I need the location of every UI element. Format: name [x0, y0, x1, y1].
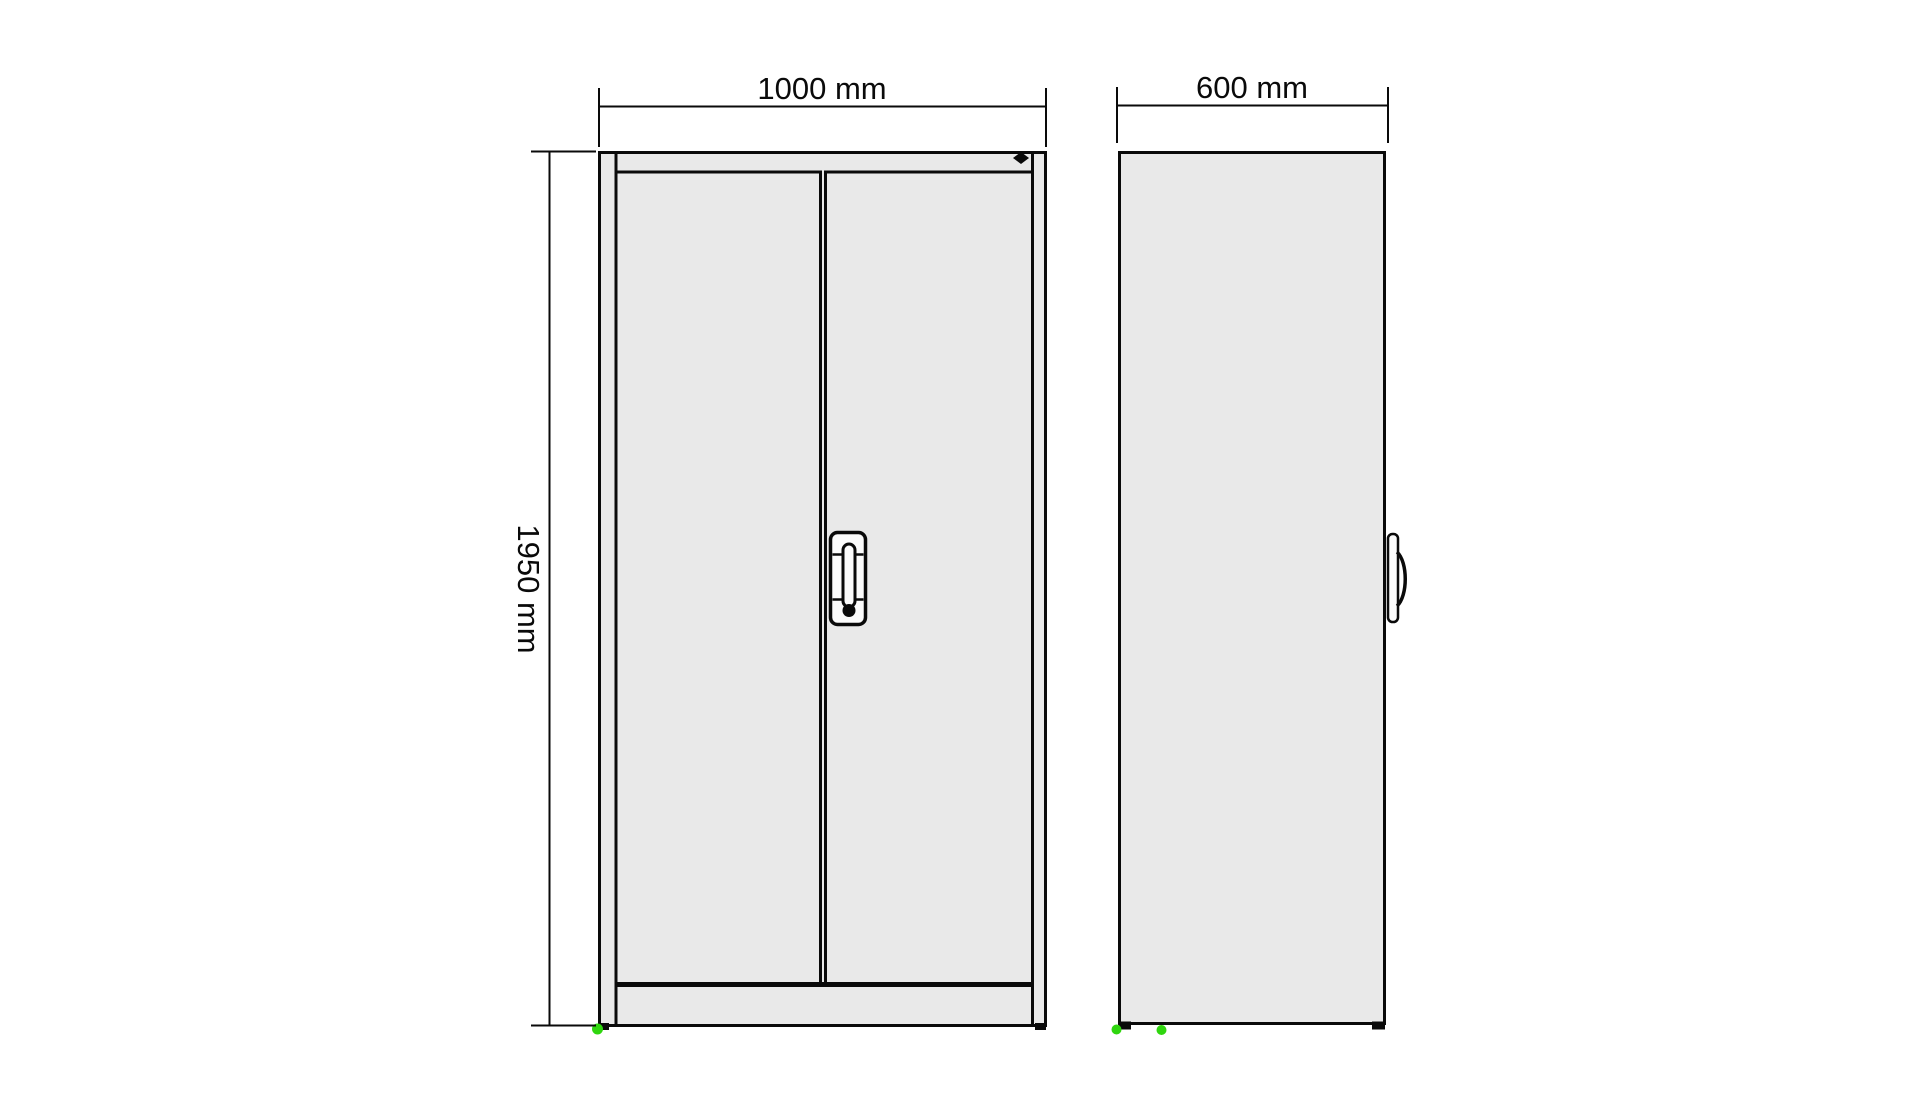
side-right-foot — [1372, 1022, 1385, 1030]
side-view-carcass — [1120, 153, 1385, 1024]
height-label: 1950 mm — [511, 524, 546, 653]
dimension-side-depth: 600 mm — [1117, 70, 1388, 143]
side-handle-plate — [1388, 534, 1398, 622]
dimension-height: 1950 mm — [511, 151, 596, 1026]
cabinet-drawing-svg: 1000 mm 600 mm 1950 mm — [0, 0, 1920, 1104]
front-left-door — [616, 172, 821, 984]
front-right-foot — [1035, 1023, 1046, 1030]
green-marker-side-foot — [1157, 1025, 1167, 1035]
front-width-label: 1000 mm — [757, 71, 886, 106]
side-view-cabinet — [1119, 153, 1405, 1030]
dimension-front-width: 1000 mm — [599, 71, 1046, 147]
green-marker-side-left — [1112, 1025, 1122, 1035]
side-depth-label: 600 mm — [1196, 70, 1308, 105]
technical-drawing-canvas: 1000 mm 600 mm 1950 mm — [0, 0, 1920, 1104]
front-view-cabinet — [599, 152, 1046, 1030]
front-door-handle — [831, 533, 866, 625]
side-view-handle-profile — [1388, 534, 1405, 622]
handle-grip-bar — [843, 544, 855, 607]
keyhole-dot-icon — [843, 604, 856, 617]
